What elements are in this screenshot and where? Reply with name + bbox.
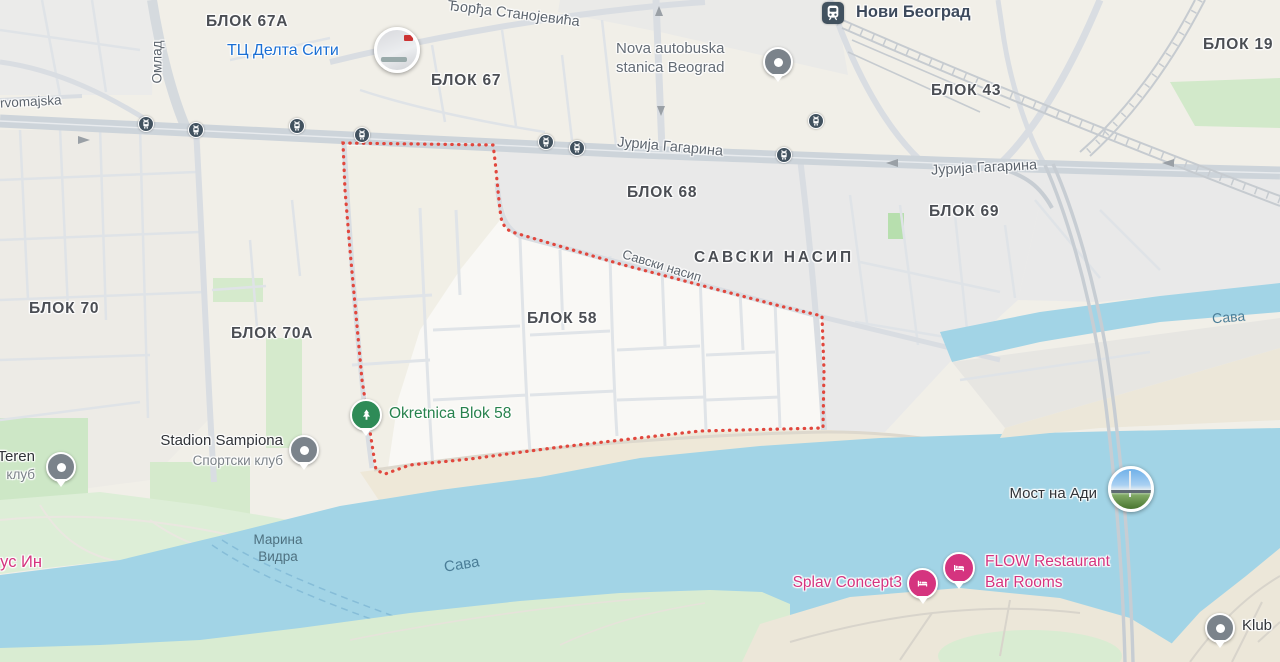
tree-icon: [358, 407, 375, 424]
poi-label-klub[interactable]: Klub: [1242, 617, 1272, 634]
railway-station-icon[interactable]: [822, 2, 844, 24]
most-na-adi-photo-pin[interactable]: [1108, 466, 1154, 512]
area-label-blok-70: БЛОК 70: [29, 300, 99, 318]
tram-stop-icon[interactable]: [354, 127, 370, 143]
bed-icon: [951, 560, 967, 576]
tram-stop-icon[interactable]: [776, 147, 792, 163]
poi-label-most-na-adi[interactable]: Мост на Ади: [1010, 485, 1097, 502]
street-label-omladinskih: Омлад: [150, 40, 165, 83]
station-label-novi-beograd[interactable]: Нови Београд: [856, 3, 971, 22]
poi-sublabel-stadion: Спортски клуб: [133, 453, 283, 468]
bed-icon: [915, 576, 930, 591]
teren-pin[interactable]: [46, 452, 76, 482]
area-label-blok-43: БЛОК 43: [931, 82, 1001, 100]
tram-stop-icon[interactable]: [188, 122, 204, 138]
photo-detail: [1111, 490, 1151, 493]
street-label-prvomajska: rvomajska: [0, 92, 62, 110]
area-label-blok-67: БЛОК 67: [431, 72, 501, 90]
tram-stop-icon[interactable]: [808, 113, 824, 129]
photo-detail: [404, 35, 413, 41]
flow-bed-pin[interactable]: [943, 552, 975, 584]
area-label-blok-70a: БЛОК 70А: [231, 325, 313, 343]
bus-station-pin[interactable]: [763, 47, 793, 77]
poi-sublabel-teren: клуб: [6, 467, 35, 482]
area-label-blok-69: БЛОК 69: [929, 203, 999, 221]
poi-label-bus-station[interactable]: Nova autobuska stanica Beograd: [616, 39, 724, 77]
tram-stop-icon[interactable]: [138, 116, 154, 132]
tram-stop-icon[interactable]: [569, 140, 585, 156]
map-canvas[interactable]: БЛОК 67А БЛОК 67 БЛОК 19 БЛОК 43 БЛОК 68…: [0, 0, 1280, 662]
water-label-marina-vidra: Марина Видра: [240, 531, 316, 565]
photo-detail: [1129, 471, 1131, 497]
stadion-pin[interactable]: [289, 435, 319, 465]
tram-stop-icon[interactable]: [289, 118, 305, 134]
photo-detail: [381, 57, 407, 62]
tram-stop-icon[interactable]: [538, 134, 554, 150]
poi-label-stadion[interactable]: Stadion Sampiona: [133, 432, 283, 449]
area-label-blok-58: БЛОК 58: [527, 310, 597, 328]
area-label-savski-nasip: САВСКИ НАСИП: [694, 249, 854, 267]
klub-pin[interactable]: [1205, 613, 1235, 643]
poi-label-flow[interactable]: FLOW Restaurant Bar Rooms: [985, 551, 1110, 593]
area-label-blok-68: БЛОК 68: [627, 184, 697, 202]
delta-city-photo-pin[interactable]: [374, 27, 420, 73]
okretnica-tree-pin[interactable]: [350, 399, 382, 431]
area-label-blok-67a: БЛОК 67А: [206, 13, 288, 31]
poi-label-okretnica[interactable]: Okretnica Blok 58: [389, 405, 511, 423]
poi-label-us-in[interactable]: ус Ин: [0, 552, 42, 573]
area-label-blok-19: БЛОК 19: [1203, 36, 1273, 54]
poi-label-splav[interactable]: Splav Concept3: [793, 572, 902, 593]
poi-label-teren[interactable]: Teren: [0, 448, 35, 465]
poi-label-delta-city[interactable]: ТЦ Делта Сити: [227, 42, 339, 60]
water-label-sava-2: Сава: [1211, 308, 1245, 327]
splav-bed-pin[interactable]: [907, 568, 938, 599]
